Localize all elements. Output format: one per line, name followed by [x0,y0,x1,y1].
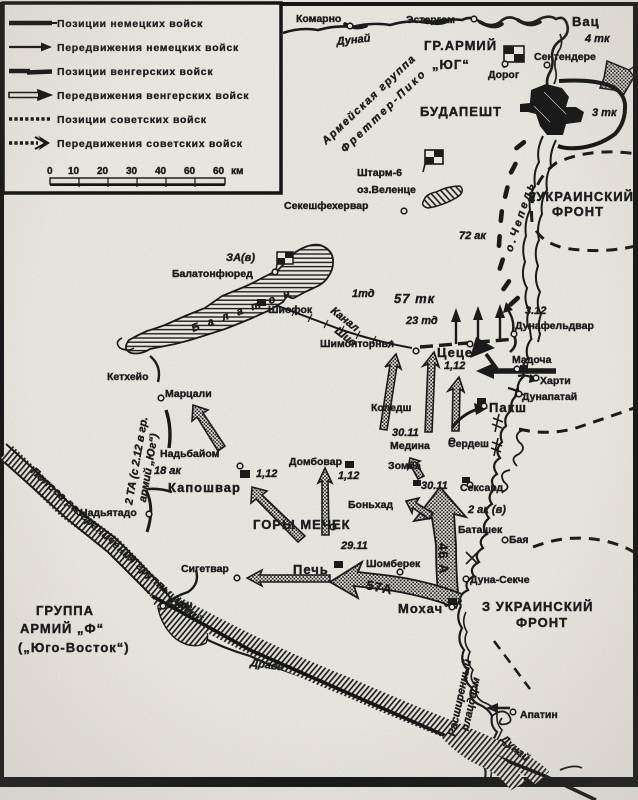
svg-text:29.11: 29.11 [340,540,368,552]
svg-text:Зомба: Зомба [388,460,421,472]
svg-text:4 тк: 4 тк [584,33,611,45]
svg-text:1,12: 1,12 [444,360,465,372]
svg-text:ФРОНТ: ФРОНТ [516,615,568,630]
svg-text:Дорог: Дорог [488,69,520,81]
svg-text:Балатонфюред: Балатонфюред [172,268,253,280]
svg-text:Кетхейо: Кетхейо [107,371,149,383]
svg-text:Сердеш: Сердеш [448,438,489,450]
svg-text:АРМИЙ „Ф“: АРМИЙ „Ф“ [20,621,104,636]
svg-text:З УКРАИНСКИЙ: З УКРАИНСКИЙ [482,599,593,614]
svg-text:Домбовар: Домбовар [289,456,342,468]
svg-text:ГОРЫ МЕЧЕК: ГОРЫ МЕЧЕК [253,517,351,532]
svg-text:Вац: Вац [572,14,600,29]
svg-text:Коледш: Коледш [371,402,411,414]
svg-text:Медина: Медина [390,440,430,452]
svg-text:2УКРАИНСКИЙ: 2УКРАИНСКИЙ [528,189,634,204]
svg-text:Мохач: Мохач [398,601,443,616]
svg-text:(„Юго-Восток“): („Юго-Восток“) [18,640,130,655]
svg-text:Марцали: Марцали [165,388,212,400]
svg-text:Боньхад: Боньхад [348,499,393,511]
svg-text:18 ак: 18 ак [154,465,182,477]
svg-text:Эстергом: Эстергом [406,14,455,26]
svg-text:оз.Веленце: оз.Веленце [357,184,416,196]
svg-text:Баташек: Баташек [458,524,503,536]
svg-text:Комарно: Комарно [296,13,341,25]
svg-text:ФРОНТ: ФРОНТ [552,204,604,219]
svg-text:30.11: 30.11 [421,480,448,492]
svg-text:3.12: 3.12 [525,305,546,317]
svg-text:Цеце: Цеце [437,345,473,360]
svg-text:Шиофок: Шиофок [268,304,313,316]
svg-text:Дунафельдвар: Дунафельдвар [515,320,594,332]
svg-text:Сексард: Сексард [460,482,503,494]
svg-text:1тд: 1тд [352,288,375,300]
svg-text:46 А: 46 А [435,543,451,575]
svg-text:3 тк: 3 тк [592,107,618,119]
svg-text:Харти: Харти [540,375,571,387]
svg-text:2 ак (в): 2 ак (в) [467,504,506,516]
svg-text:Пакш: Пакш [489,400,527,415]
svg-text:Сигетвар: Сигетвар [181,563,229,575]
svg-text:Сентендере: Сентендере [534,51,596,63]
svg-text:„ЮГ“: „ЮГ“ [432,57,470,72]
svg-text:Дуна-Секче: Дуна-Секче [470,574,530,586]
svg-text:Апатин: Апатин [520,709,558,721]
svg-text:Дунапатай: Дунапатай [522,391,577,403]
svg-text:Бая: Бая [509,534,529,546]
svg-text:1,12: 1,12 [256,468,277,480]
svg-text:БУДАПЕШТ: БУДАПЕШТ [420,104,502,119]
svg-text:57 тк: 57 тк [394,291,436,306]
svg-text:1,12: 1,12 [338,470,359,482]
svg-text:ЗА(в): ЗА(в) [226,252,255,264]
svg-text:23 тд: 23 тд [405,315,438,327]
svg-text:ГР.АРМИЙ: ГР.АРМИЙ [424,38,497,53]
svg-text:72 ак: 72 ак [459,230,487,242]
svg-text:Секешфехервар: Секешфехервар [284,200,368,212]
svg-text:Штарм-6: Штарм-6 [357,167,402,179]
svg-text:Надьбайом: Надьбайом [160,448,220,460]
svg-text:30.11: 30.11 [392,427,419,439]
svg-text:ГРУППА: ГРУППА [36,603,94,618]
svg-text:Печь: Печь [293,562,329,577]
svg-text:Мадоча: Мадоча [512,354,552,366]
svg-text:Шомберек: Шомберек [366,558,421,570]
svg-text:Капошвар: Капошвар [168,480,241,495]
